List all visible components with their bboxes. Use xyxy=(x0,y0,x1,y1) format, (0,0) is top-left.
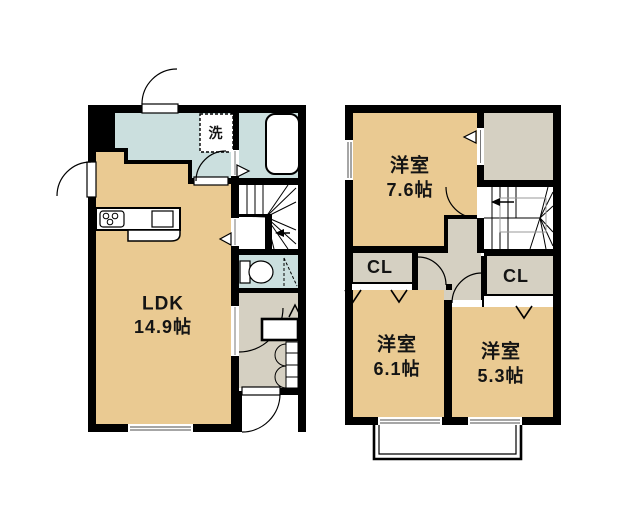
wall-segment xyxy=(88,197,96,432)
entrance-door-icon xyxy=(242,387,280,432)
bedroom61-size: 6.1帖 xyxy=(373,360,420,378)
closet-left-opening xyxy=(352,284,412,290)
wall-segment xyxy=(522,417,561,425)
wall-segment xyxy=(484,180,561,187)
bedroom76-size: 7.6帖 xyxy=(386,181,433,199)
wall-segment xyxy=(88,105,96,162)
wall-segment xyxy=(345,180,353,425)
window-icon xyxy=(468,417,522,425)
wall-segment xyxy=(444,215,448,253)
wall-segment xyxy=(231,356,239,424)
wall-segment xyxy=(482,300,484,307)
bathtub-icon xyxy=(266,114,299,174)
window-icon xyxy=(345,140,353,180)
wall-segment xyxy=(442,417,468,425)
laundry-label: 洗 xyxy=(209,126,224,140)
bedroom76-label: 洋室 xyxy=(390,157,430,176)
wall-segment xyxy=(412,284,418,290)
wall-segment xyxy=(352,282,412,284)
wall-segment xyxy=(446,284,452,290)
wall-segment xyxy=(345,105,561,113)
floor-plan: LDK 14.9帖 洗 洋室 7.6帖 洋室 6.1帖 洋室 5.3帖 CL C… xyxy=(0,0,640,512)
sink-icon xyxy=(152,211,173,227)
wall-segment xyxy=(477,165,484,187)
ldk-room-label: LDK xyxy=(142,295,184,314)
wall-segment xyxy=(477,105,484,128)
wall-segment xyxy=(484,249,561,256)
wall-segment xyxy=(553,105,561,425)
upper-hall-area xyxy=(484,113,553,180)
floor-plan-drawing xyxy=(0,0,640,512)
window-icon xyxy=(128,424,193,432)
wall-segment xyxy=(477,218,484,253)
bedroom76-door-gap xyxy=(477,187,484,218)
wall-segment xyxy=(124,160,192,164)
wall-segment xyxy=(231,185,239,218)
window-icon xyxy=(378,417,442,425)
toilet-icon xyxy=(240,261,273,283)
shoe-cabinet-icon xyxy=(262,319,298,340)
closet-left-label: CL xyxy=(367,258,393,276)
hall2f-area xyxy=(448,219,477,253)
balcony-icon xyxy=(374,425,521,459)
closet-right-label: CL xyxy=(503,267,529,285)
wall-segment xyxy=(231,178,306,185)
wall-segment xyxy=(278,388,306,395)
ldk-size-label: 14.9帖 xyxy=(134,318,192,336)
wall-segment xyxy=(481,256,487,300)
wall-segment xyxy=(178,105,306,113)
wall-segment xyxy=(88,424,128,432)
bedroom53-label: 洋室 xyxy=(481,343,521,362)
wall-segment xyxy=(444,300,452,417)
closet-right-opening xyxy=(484,296,553,304)
wall-segment xyxy=(484,294,553,296)
wall-segment xyxy=(412,246,418,286)
bedroom61-label: 洋室 xyxy=(377,336,417,355)
ldk-area xyxy=(96,152,231,424)
wall-segment xyxy=(345,105,353,140)
door-left-icon xyxy=(57,162,96,197)
wall-segment xyxy=(345,417,378,425)
wall-segment xyxy=(345,246,444,253)
counter-extension xyxy=(128,230,180,241)
wall-segment xyxy=(96,148,128,152)
wall-segment xyxy=(231,288,306,293)
door-top-icon xyxy=(142,69,178,113)
bedroom53-size: 5.3帖 xyxy=(477,367,524,385)
wall-segment xyxy=(448,215,477,219)
